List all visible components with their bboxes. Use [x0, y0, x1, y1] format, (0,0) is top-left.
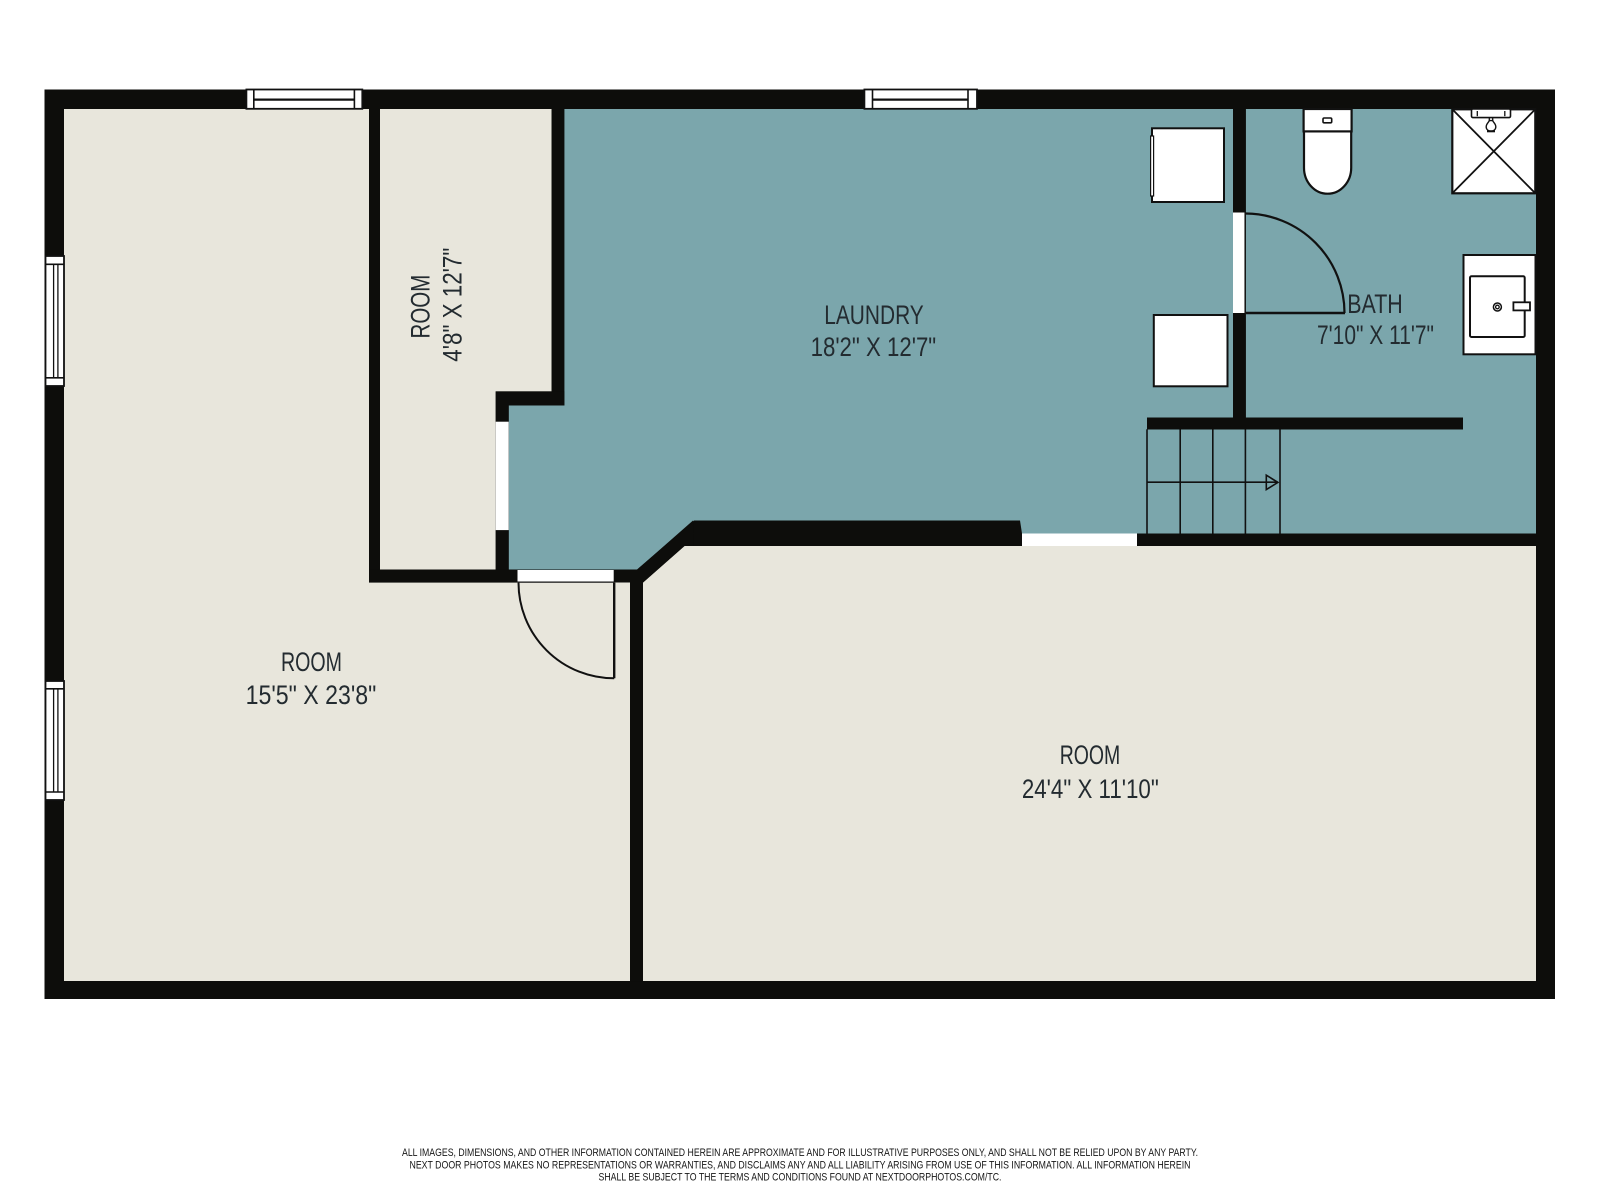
svg-text:18'2" X 12'7": 18'2" X 12'7" — [811, 332, 937, 362]
svg-text:ALL IMAGES, DIMENSIONS, AND OT: ALL IMAGES, DIMENSIONS, AND OTHER INFORM… — [402, 1147, 1198, 1159]
svg-text:LAUNDRY: LAUNDRY — [824, 300, 924, 330]
svg-text:24'4" X 11'10": 24'4" X 11'10" — [1022, 774, 1159, 804]
svg-text:ROOM: ROOM — [406, 275, 436, 339]
svg-text:15'5" X 23'8": 15'5" X 23'8" — [246, 680, 377, 710]
svg-text:SHALL BE SUBJECT TO THE TERMS: SHALL BE SUBJECT TO THE TERMS AND CONDIT… — [599, 1171, 1002, 1183]
svg-text:BATH: BATH — [1347, 289, 1403, 319]
svg-text:NEXT DOOR PHOTOS MAKES NO REPR: NEXT DOOR PHOTOS MAKES NO REPRESENTATION… — [410, 1159, 1191, 1171]
svg-text:ROOM: ROOM — [1060, 740, 1121, 770]
svg-text:4'8" X 12'7": 4'8" X 12'7" — [438, 248, 468, 362]
svg-text:7'10" X 11'7": 7'10" X 11'7" — [1317, 320, 1434, 350]
svg-text:ROOM: ROOM — [281, 647, 342, 677]
